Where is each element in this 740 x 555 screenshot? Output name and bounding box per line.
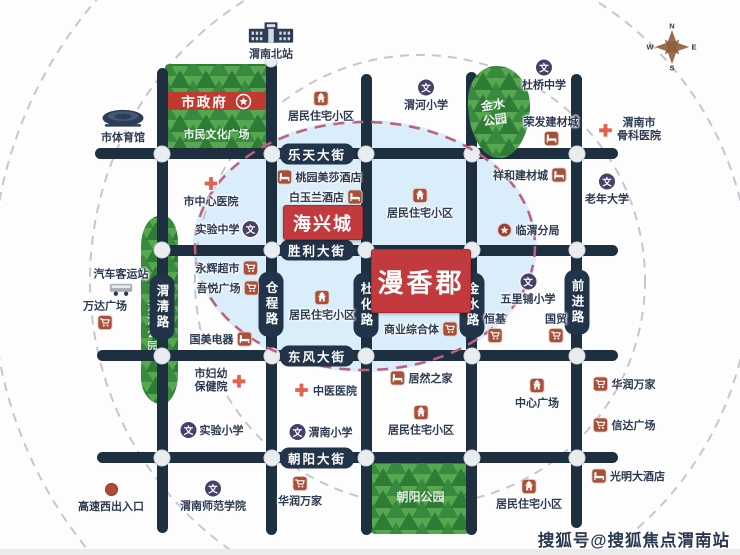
poi-residential-northeast: 居民住宅小区 (387, 188, 453, 221)
school-icon: 文 (599, 174, 615, 190)
road-intersection (569, 348, 586, 365)
city-government-banner: 市政府 (165, 92, 268, 110)
poi-label: 实验小学 (200, 422, 244, 438)
road-intersection (569, 242, 586, 259)
poi-label: 永辉超市 (196, 260, 240, 276)
hospital-cross-icon (597, 122, 614, 139)
road-intersection (154, 450, 171, 467)
school-icon: 文 (418, 80, 434, 96)
compass-icon-diagonal (657, 32, 687, 62)
shopping-cart-icon (243, 260, 259, 276)
poi-senior-university: 文 老年大学 (585, 174, 629, 207)
road-intersection (464, 450, 481, 467)
poi-taoyuan-hotel: 桃园美莎酒店 (277, 169, 362, 185)
poi-label: 国贸 (545, 311, 567, 327)
poi-label-line1: 渭南市 (617, 117, 661, 130)
poi-bus-station: 汽车客运站 (94, 266, 149, 297)
shopping-cart-icon (593, 417, 609, 433)
poi-label: 吾悦广场 (197, 280, 241, 296)
poi-guomao: 国贸 (545, 311, 567, 344)
road-intersection (264, 146, 281, 163)
road-intersection (264, 242, 281, 259)
shopping-cart-icon (548, 328, 564, 344)
poi-label: 渭河小学 (404, 97, 448, 113)
road-intersection (358, 450, 375, 467)
poi-bone-hospital: 渭南市 骨科医院 (597, 117, 661, 143)
map-canvas: N E S W 市政府 市民文化广场 金水 公园 渭清公园 朝阳公园 乐天大街 … (0, 0, 740, 555)
store-icon (551, 167, 567, 183)
road-intersection (358, 146, 375, 163)
shopping-cart-icon (442, 321, 458, 337)
shopping-cart-icon (593, 376, 609, 392)
poi-label: 渭南北站 (249, 46, 293, 62)
poi-label: 居然之家 (409, 370, 453, 386)
poi-label: 祥和建材城 (493, 167, 548, 183)
road-intersection (154, 242, 171, 259)
compass-e: E (691, 43, 696, 52)
hotel-icon (347, 189, 363, 205)
poi-normal-university: 文 渭南师范学院 (180, 481, 246, 514)
residential-icon (521, 479, 537, 495)
poi-label: 高速西出入口 (78, 498, 144, 514)
poi-label: 市中心医院 (184, 193, 239, 209)
hotel-icon (591, 468, 607, 484)
poi-label: 实验中学 (196, 221, 240, 237)
poi-label: 居民住宅小区 (388, 422, 454, 438)
poi-label: 老年大学 (585, 191, 629, 207)
poi-guangming-hotel: 光明大酒店 (591, 468, 665, 484)
poi-label: 中心广场 (515, 395, 559, 411)
road-label-weiqing: 渭清路 (150, 275, 175, 340)
street-label-dongfeng: 东风大街 (280, 346, 354, 367)
road-label-cangcheng: 仓程路 (259, 272, 284, 337)
road-intersection (464, 146, 481, 163)
poi-label: 信达广场 (612, 417, 656, 433)
road-intersection (569, 146, 586, 163)
store-icon (237, 331, 253, 347)
civic-square-label: 市民文化广场 (184, 126, 250, 142)
poi-label: 商业综合体 (384, 321, 439, 337)
road-intersection (264, 450, 281, 467)
street-label-shengli: 胜利大街 (280, 240, 354, 261)
residential-icon (412, 188, 428, 204)
poi-label: 居民住宅小区 (288, 108, 354, 124)
hotel-icon (277, 169, 293, 185)
school-icon: 文 (536, 60, 552, 76)
hospital-cross-icon (231, 373, 248, 390)
poi-baiyulan-hotel: 白玉兰酒店 (289, 189, 363, 205)
school-icon: 文 (205, 481, 221, 497)
school-icon: 文 (243, 221, 259, 237)
poi-label: 五里铺小学 (501, 291, 556, 307)
shopping-cart-icon (97, 315, 113, 331)
poi-wulipu-primary-school: 文 五里铺小学 (501, 274, 556, 307)
shopping-cart-icon (292, 476, 308, 492)
jinshui-park-label-line2: 公园 (482, 111, 508, 129)
road-intersection (569, 450, 586, 467)
school-icon: 文 (520, 274, 536, 290)
poi-residential-central: 居民住宅小区 (388, 405, 454, 438)
chaoyang-park: 朝阳公园 (368, 462, 473, 534)
compass-icon (655, 30, 689, 64)
poi-label-line2: 骨科医院 (617, 130, 661, 143)
hospital-cross-icon (293, 382, 310, 399)
project-manxiangjun: 漫香郡 (371, 249, 471, 313)
compass-s: S (669, 64, 674, 73)
poi-central-hospital: 市中心医院 (184, 175, 239, 209)
poi-label: 荣发建材城 (524, 114, 579, 130)
poi-label: 华润万家 (278, 493, 322, 509)
poi-linwei-police-bureau: 临渭分局 (497, 222, 560, 238)
poi-residential-north: 居民住宅小区 (288, 91, 354, 124)
compass-n: N (669, 22, 674, 31)
poi-label: 光明大酒店 (610, 468, 665, 484)
poi-rongfa-building-materials: 荣发建材城 (524, 114, 579, 147)
residential-icon (314, 290, 330, 306)
poi-label: 桃园美莎酒店 (296, 169, 362, 185)
poi-xinda-plaza: 信达广场 (593, 417, 656, 433)
poi-label: 万达广场 (83, 298, 127, 314)
poi-label: 国美电器 (190, 331, 234, 347)
road-intersection (358, 348, 375, 365)
road-label-qianjin: 前进路 (565, 270, 590, 335)
road-intersection (264, 348, 281, 365)
poi-residential-west: 居民住宅小区 (289, 290, 355, 323)
poi-label: 白玉兰酒店 (289, 189, 344, 205)
project-haixingcheng: 海兴城 (283, 205, 363, 240)
poi-weinan-north-station: 渭南北站 (248, 21, 294, 62)
poi-label-line1: 市妇幼 (195, 368, 228, 381)
poi-juran-home: 居然之家 (390, 370, 453, 386)
poi-label: 渭南小学 (309, 424, 353, 440)
hospital-cross-icon (203, 175, 220, 192)
poi-weinan-primary-school: 文 渭南小学 (290, 424, 353, 440)
poi-label: 中医医院 (313, 382, 357, 398)
highway-exit-dot-icon (104, 482, 119, 497)
poi-sports-hall: 市体育馆 (101, 107, 145, 145)
poi-label: 居民住宅小区 (496, 496, 562, 512)
poi-huarun-north: 华润万家 (593, 376, 656, 392)
city-government-park: 市政府 市民文化广场 (165, 64, 268, 150)
poi-xianghe-building-materials: 祥和建材城 (493, 167, 567, 183)
road-intersection (154, 146, 171, 163)
poi-label: 市体育馆 (101, 129, 145, 145)
store-icon (543, 131, 559, 147)
government-star-icon (235, 93, 252, 110)
poi-weihe-primary-school: 文 渭河小学 (404, 80, 448, 113)
poi-residential-southeast: 居民住宅小区 (496, 479, 562, 512)
poi-shiyan-primary-school: 文 实验小学 (181, 422, 244, 438)
poi-label: 临渭分局 (516, 222, 560, 238)
street-label-letian: 乐天大街 (280, 144, 354, 165)
school-icon: 文 (290, 424, 306, 440)
poi-label: 华润万家 (612, 376, 656, 392)
road-intersection (154, 348, 171, 365)
shopping-cart-icon (244, 280, 260, 296)
poi-duqiao-middle-school: 文 杜桥中学 (522, 60, 566, 93)
compass-w: W (646, 43, 653, 52)
poi-label: 汽车客运站 (94, 266, 149, 282)
poi-wanda-plaza: 万达广场 (83, 298, 127, 331)
poi-tcm-hospital: 中医医院 (293, 382, 357, 399)
city-government-label: 市政府 (181, 91, 228, 111)
poi-label: 恒基 (484, 311, 506, 327)
street-label-chaoyang: 朝阳大街 (280, 448, 354, 469)
residential-icon (413, 405, 429, 421)
stadium-icon (101, 107, 145, 128)
furniture-store-icon (390, 370, 406, 386)
train-station-icon (248, 21, 294, 45)
poi-label: 渭南师范学院 (180, 498, 246, 514)
poi-yonghui-supermarket: 永辉超市 (196, 260, 259, 276)
bus-icon (109, 283, 134, 297)
poi-label: 杜桥中学 (522, 77, 566, 93)
poi-highway-west-exit: 高速西出入口 (78, 482, 144, 514)
poi-shiyan-middle-school: 实验中学 文 (196, 221, 259, 237)
poi-wuyue-plaza: 吾悦广场 (197, 280, 260, 296)
poi-hengji: 恒基 (484, 311, 506, 344)
poi-gome-electronics: 国美电器 (190, 331, 253, 347)
jinshui-park: 金水 公园 (468, 66, 530, 158)
residential-icon (313, 91, 329, 107)
police-badge-icon (497, 222, 513, 238)
watermark: 搜狐号@搜狐焦点渭南站 (538, 527, 730, 551)
poi-maternity-hospital: 市妇幼 保健院 (195, 368, 248, 394)
poi-huarun-south: 华润万家 (278, 476, 322, 509)
poi-central-plaza: 中心广场 (515, 378, 559, 411)
chaoyang-park-label: 朝阳公园 (396, 488, 444, 505)
poi-label: 居民住宅小区 (289, 307, 355, 323)
plaza-icon (529, 378, 545, 394)
school-icon: 文 (181, 422, 197, 438)
poi-label-line2: 保健院 (195, 381, 228, 394)
road-intersection (464, 348, 481, 365)
poi-label: 居民住宅小区 (387, 205, 453, 221)
road-letian-street (95, 148, 618, 159)
shopping-cart-icon (487, 328, 503, 344)
poi-commercial-complex: 商业综合体 (384, 321, 458, 337)
